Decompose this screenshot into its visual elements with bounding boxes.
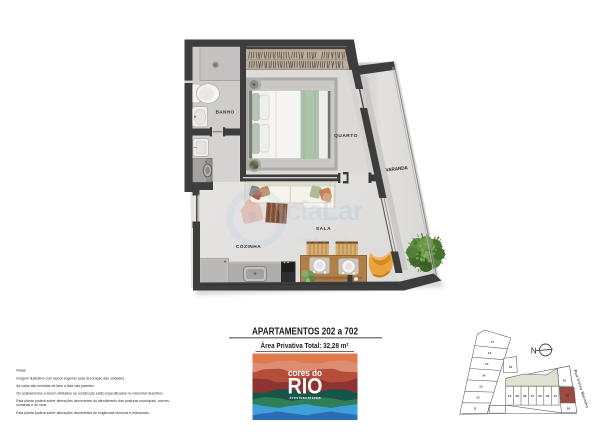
svg-text:11: 11 bbox=[473, 407, 477, 411]
svg-text:ciaLar: ciaLar bbox=[286, 195, 364, 226]
svg-text:Esta planta poderá sofrer alte: Esta planta poderá sofrer alterações dec… bbox=[16, 411, 149, 415]
svg-text:09: 09 bbox=[515, 394, 519, 398]
svg-text:13: 13 bbox=[479, 385, 483, 389]
svg-text:10: 10 bbox=[508, 394, 512, 398]
svg-text:02: 02 bbox=[566, 394, 570, 398]
svg-text:01: 01 bbox=[563, 378, 567, 382]
svg-text:03: 03 bbox=[567, 406, 571, 410]
svg-text:BANHO: BANHO bbox=[216, 110, 235, 115]
svg-text:Esta planta poderá sofrer alte: Esta planta poderá sofrer alterações dec… bbox=[16, 399, 171, 403]
svg-text:N: N bbox=[531, 346, 537, 355]
svg-text:16: 16 bbox=[488, 351, 492, 355]
svg-text:RIO: RIO bbox=[288, 374, 323, 399]
svg-text:Área Privativa Total: 32,28 m²: Área Privativa Total: 32,28 m² bbox=[261, 341, 350, 350]
svg-text:08: 08 bbox=[523, 394, 527, 398]
svg-text:APARTAMENTOS 202 a 702: APARTAMENTOS 202 a 702 bbox=[252, 327, 358, 338]
svg-text:sionárias e do local.: sionárias e do local. bbox=[16, 403, 47, 407]
svg-text:Notas:: Notas: bbox=[16, 369, 26, 373]
svg-text:04: 04 bbox=[553, 394, 557, 398]
svg-text:Os acabamentos a serem utiliza: Os acabamentos a serem utilizados na con… bbox=[16, 392, 163, 396]
svg-text:05: 05 bbox=[546, 394, 550, 398]
svg-text:Imagem ilustrativo com layout: Imagem ilustrativo com layout sugerido p… bbox=[16, 377, 125, 381]
svg-text:14: 14 bbox=[482, 373, 486, 377]
svg-text:COZINHA: COZINHA bbox=[236, 244, 261, 250]
svg-text:12: 12 bbox=[476, 396, 480, 400]
svg-text:06: 06 bbox=[538, 394, 542, 398]
svg-text:18: 18 bbox=[509, 365, 513, 369]
svg-text:QUARTO: QUARTO bbox=[334, 133, 358, 139]
svg-text:17: 17 bbox=[491, 340, 495, 344]
svg-text:IMÓVEIS: IMÓVEIS bbox=[299, 236, 351, 245]
svg-text:SALA: SALA bbox=[316, 226, 331, 232]
svg-text:#revivacarioca: #revivacarioca bbox=[290, 396, 322, 400]
svg-text:15: 15 bbox=[485, 362, 489, 366]
svg-text:As cotas são medidas de face a: As cotas são medidas de face a face das … bbox=[16, 384, 94, 388]
svg-text:07: 07 bbox=[531, 394, 535, 398]
